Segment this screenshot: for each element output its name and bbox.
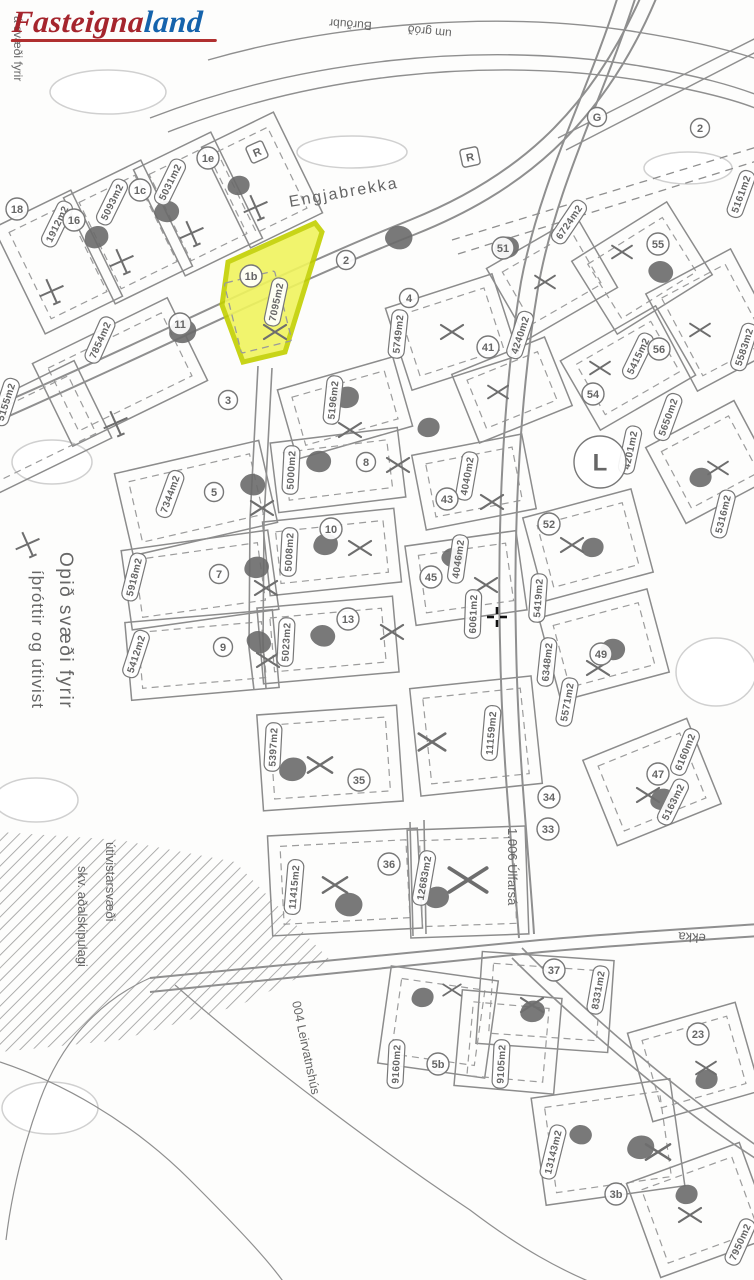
- plus-mark-icon: [104, 244, 138, 278]
- vegetation-blob: [418, 418, 440, 437]
- house-cross-icon: [381, 625, 403, 639]
- area-label: 5196m2: [323, 375, 344, 425]
- plot-number-text: 54: [587, 389, 600, 401]
- house-cross-icon: [481, 495, 503, 509]
- plot-number-circle: 36: [378, 853, 400, 875]
- area-label: 5571m2: [555, 677, 579, 727]
- building-envelope: [135, 543, 266, 618]
- plot-number-text: 47: [652, 769, 664, 781]
- plot-number-circle: 34: [538, 786, 560, 808]
- area-label-text: 6061m2: [468, 594, 480, 633]
- vegetation-blob: [279, 757, 306, 781]
- area-label: 5397m2: [264, 722, 283, 771]
- cloud-outline: [297, 136, 407, 168]
- plot-number-circle: 47: [647, 763, 669, 785]
- plot-number-circle: 1c: [129, 179, 151, 201]
- plot-number-circle: 13: [337, 608, 359, 630]
- area-label: 5316m2: [709, 489, 736, 540]
- plot-number-circle: 18: [6, 198, 28, 220]
- plot-number-text: 9: [220, 642, 226, 654]
- road-line: [512, 958, 754, 1160]
- house-cross-icon: [255, 581, 277, 595]
- building-envelope: [283, 440, 392, 500]
- plot-number-text: 52: [543, 519, 555, 531]
- plot-number-circle: 3: [219, 391, 238, 410]
- street-label-top-b: um gróð: [407, 22, 453, 41]
- logo-text-blue: land: [143, 4, 204, 39]
- area-label: 6160m2: [669, 727, 702, 778]
- open-area-label-line2: íþróttir og útivist: [28, 570, 47, 709]
- plot-number-text: 33: [542, 824, 554, 836]
- plot-number-circle: L: [574, 436, 626, 488]
- r-station: R: [245, 140, 269, 164]
- building-envelope: [129, 454, 264, 542]
- plot-number-text: 8: [363, 457, 369, 469]
- river-label: 1.006 Úlfarsá: [505, 828, 520, 906]
- plot-number-circle: 9: [214, 638, 233, 657]
- area-label-text: 5008m2: [283, 532, 296, 572]
- plot-number-circle: 8: [357, 453, 376, 472]
- street-label-top-a: Burðubr: [329, 16, 373, 33]
- plot-number-text: 3b: [610, 1189, 623, 1201]
- scanned-site-plan-page: 1912m25093m25031m27854m25155m27344m25918…: [0, 0, 754, 1280]
- hatch-area-label-line1: útivistarsvæði: [103, 842, 118, 922]
- house-cross-icon: [690, 324, 710, 337]
- plot-number-text: 4: [406, 293, 413, 305]
- building-envelope: [138, 622, 266, 689]
- area-label: 4040m2: [455, 451, 479, 501]
- plot-number-circle: 55: [647, 233, 669, 255]
- plot-number-circle: 7: [210, 565, 229, 584]
- plot-number-text: 1b: [245, 271, 258, 283]
- house-cross-icon: [349, 541, 371, 555]
- vegetation-blob: [676, 1185, 698, 1204]
- crosshair-cursor: [487, 607, 507, 627]
- house-cross-icon: [612, 246, 632, 259]
- area-label: 4046m2: [447, 534, 470, 584]
- parcel-outline: [125, 610, 279, 701]
- plot-number-circle: 45: [420, 566, 442, 588]
- house-cross-icon: [323, 877, 347, 892]
- plus-mark-icon: [34, 274, 68, 308]
- plot-number-text: 11: [174, 319, 186, 331]
- logo-underline: [11, 39, 217, 42]
- vegetation-blob: [645, 256, 677, 287]
- road-line: [150, 55, 754, 118]
- vegetation-blob: [383, 223, 415, 253]
- road-line: [558, 36, 754, 138]
- plot-number-text: 41: [482, 342, 494, 354]
- house-cross-icon: [488, 386, 508, 399]
- house-cross-icon: [339, 423, 361, 437]
- plot-number-circle: 41: [477, 336, 499, 358]
- area-label: 6348m2: [537, 637, 558, 687]
- plot-number-text: 34: [543, 792, 556, 804]
- area-label-text: 5397m2: [267, 727, 280, 767]
- house-cross-icon: [561, 538, 583, 552]
- area-label: 5161m2: [725, 169, 754, 220]
- plot-number-text: 10: [325, 524, 337, 536]
- vegetation-blob: [238, 470, 268, 499]
- plot-number-circle: 23: [687, 1023, 709, 1045]
- plot-number-text: 5: [211, 487, 217, 499]
- plot-number-text: 2: [697, 123, 703, 135]
- fasteignaland-logo: Fasteignaland: [11, 6, 220, 42]
- area-label-text: 5023m2: [280, 622, 293, 662]
- area-label: 5000m2: [282, 445, 301, 494]
- cloud-outline: [12, 440, 92, 484]
- plot-number-circle: 35: [348, 769, 370, 791]
- plot-number-circle: 2: [691, 119, 710, 138]
- plot-number-circle: 51: [492, 237, 514, 259]
- area-label-text: 9160m2: [390, 1044, 403, 1084]
- plot-number-text: 5b: [432, 1059, 445, 1071]
- plot-number-text: L: [593, 450, 608, 477]
- plot-number-circle: 37: [543, 959, 565, 981]
- house-cross-icon: [475, 578, 497, 592]
- area-label: 5031m2: [152, 157, 188, 208]
- plot-number-circle: 49: [590, 643, 612, 665]
- house-cross-icon: [679, 1208, 701, 1222]
- cloud-outline: [0, 778, 78, 822]
- plot-number-text: 16: [68, 215, 80, 227]
- building-envelope: [588, 218, 697, 319]
- r-station: R: [459, 146, 480, 167]
- plot-number-circle: 4: [400, 289, 419, 308]
- plot-number-circle: 1b: [240, 265, 262, 287]
- vegetation-blob: [690, 468, 712, 487]
- plot-number-text: 51: [497, 243, 509, 255]
- area-label: 9160m2: [387, 1039, 406, 1088]
- open-area-label-line1: Opið svæði fyrir: [55, 552, 76, 709]
- vegetation-blob: [412, 988, 434, 1007]
- house-cross-icon: [535, 276, 555, 289]
- area-label: 5650m2: [652, 392, 684, 443]
- plot-number-text: 56: [653, 344, 665, 356]
- plot-number-text: 13: [342, 614, 354, 626]
- plot-number-circle: 5: [205, 483, 224, 502]
- plot-number-text: 18: [11, 204, 23, 216]
- plot-number-text: 1c: [134, 185, 146, 197]
- plot-number-text: 36: [383, 859, 395, 871]
- house-cross-icon: [449, 868, 486, 892]
- area-label: 8331m2: [586, 965, 610, 1015]
- house-cross-icon: [251, 501, 273, 515]
- area-label: 5093m2: [94, 177, 130, 228]
- street-label-engjabrekka: Engjabrekka: [288, 175, 400, 211]
- house-cross-icon: [308, 757, 332, 772]
- area-label: 6061m2: [464, 590, 482, 639]
- building-envelope: [423, 688, 529, 784]
- site-plan-map[interactable]: 1912m25093m25031m27854m25155m27344m25918…: [0, 0, 754, 1280]
- plus-mark-icon: [98, 406, 132, 440]
- vegetation-blob: [567, 1122, 594, 1148]
- plot-number-circle: 3b: [605, 1183, 627, 1205]
- logo-text-red: Fasteigna: [11, 4, 145, 39]
- plot-number-circle: 16: [63, 209, 85, 231]
- plus-mark-icon: [174, 216, 208, 250]
- plot-number-circle: 1e: [197, 147, 219, 169]
- area-label: 13143m2: [539, 1123, 568, 1180]
- area-label: 5008m2: [280, 527, 299, 576]
- house-cross-icon: [419, 734, 445, 751]
- area-label-text: 5000m2: [285, 450, 298, 490]
- area-label: 5749m2: [388, 309, 409, 359]
- area-label: 5583m2: [729, 322, 754, 373]
- plot-number-circle: 5b: [427, 1053, 449, 1075]
- plus-mark-icon: [10, 527, 44, 561]
- plot-number-text: 7: [216, 569, 222, 581]
- plot-number-text: 2: [343, 255, 349, 267]
- house-cross-icon: [387, 458, 409, 472]
- vegetation-blob: [333, 890, 365, 920]
- house-cross-icon: [441, 325, 463, 339]
- plot-number-text: 45: [425, 572, 437, 584]
- plot-number-text: 23: [692, 1029, 704, 1041]
- hatched-open-area: [0, 832, 332, 1052]
- plot-number-text: 37: [548, 965, 560, 977]
- area-label: 7344m2: [154, 469, 186, 520]
- plot-number-circle: 52: [538, 513, 560, 535]
- area-label: 7854m2: [83, 315, 117, 366]
- street-label-bottom: ekka: [677, 929, 706, 946]
- area-label-text: 9105m2: [495, 1044, 508, 1084]
- plot-number-text: 3: [225, 395, 231, 407]
- area-label: 5023m2: [277, 617, 296, 666]
- cloud-outline: [676, 638, 754, 706]
- vegetation-blob: [582, 538, 604, 557]
- cloud-outline: [50, 70, 166, 114]
- vegetation-blob: [307, 621, 338, 651]
- area-label: 5155m2: [0, 377, 21, 428]
- plot-number-circle: 10: [320, 518, 342, 540]
- plot-number-circle: 56: [648, 338, 670, 360]
- plot-number-circle: 33: [537, 818, 559, 840]
- area-label: 11415m2: [284, 859, 305, 915]
- cloud-outline: [644, 152, 732, 184]
- plot-number-text: G: [593, 112, 602, 124]
- area-label: 11159m2: [481, 705, 502, 761]
- road-line: [168, 70, 754, 132]
- area-label: 6724m2: [549, 197, 589, 246]
- plot-number-circle: 43: [436, 488, 458, 510]
- house-cross-icon: [257, 653, 279, 667]
- plot-number-circle: 54: [582, 383, 604, 405]
- area-label: 9105m2: [492, 1039, 511, 1088]
- plot-number-circle: 11: [169, 313, 191, 335]
- hatch-area-label-line2: skv. aðalskipulagi: [75, 866, 90, 967]
- south-area-label: 004 Leirvatnshús: [289, 1000, 322, 1096]
- cloud-outline: [2, 1082, 98, 1134]
- plot-number-text: 43: [441, 494, 453, 506]
- plot-number-circle: G: [588, 108, 607, 127]
- plot-number-text: 55: [652, 239, 664, 251]
- vegetation-blob: [305, 449, 333, 474]
- vegetation-blob: [244, 557, 269, 579]
- house-cross-icon: [708, 462, 728, 475]
- vegetation-blob: [228, 176, 250, 195]
- plot-number-circle: 2: [337, 251, 356, 270]
- area-label: 5419m2: [528, 573, 547, 622]
- plot-number-text: 1e: [202, 153, 214, 165]
- plot-number-text: 49: [595, 649, 607, 661]
- house-cross-icon: [590, 362, 610, 375]
- plot-number-text: 35: [353, 775, 365, 787]
